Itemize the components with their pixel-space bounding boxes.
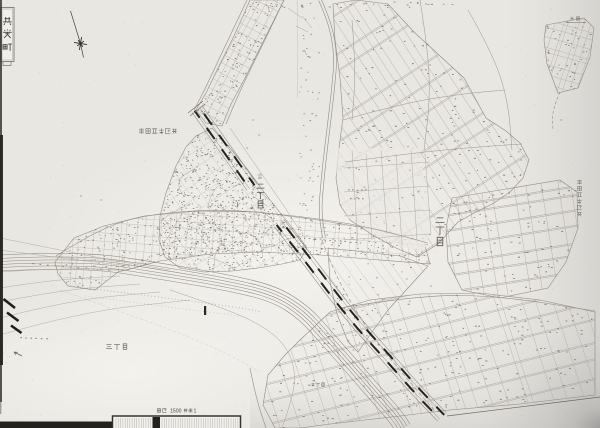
- svg-text:1: 1: [194, 409, 197, 415]
- svg-text:1500: 1500: [170, 409, 182, 415]
